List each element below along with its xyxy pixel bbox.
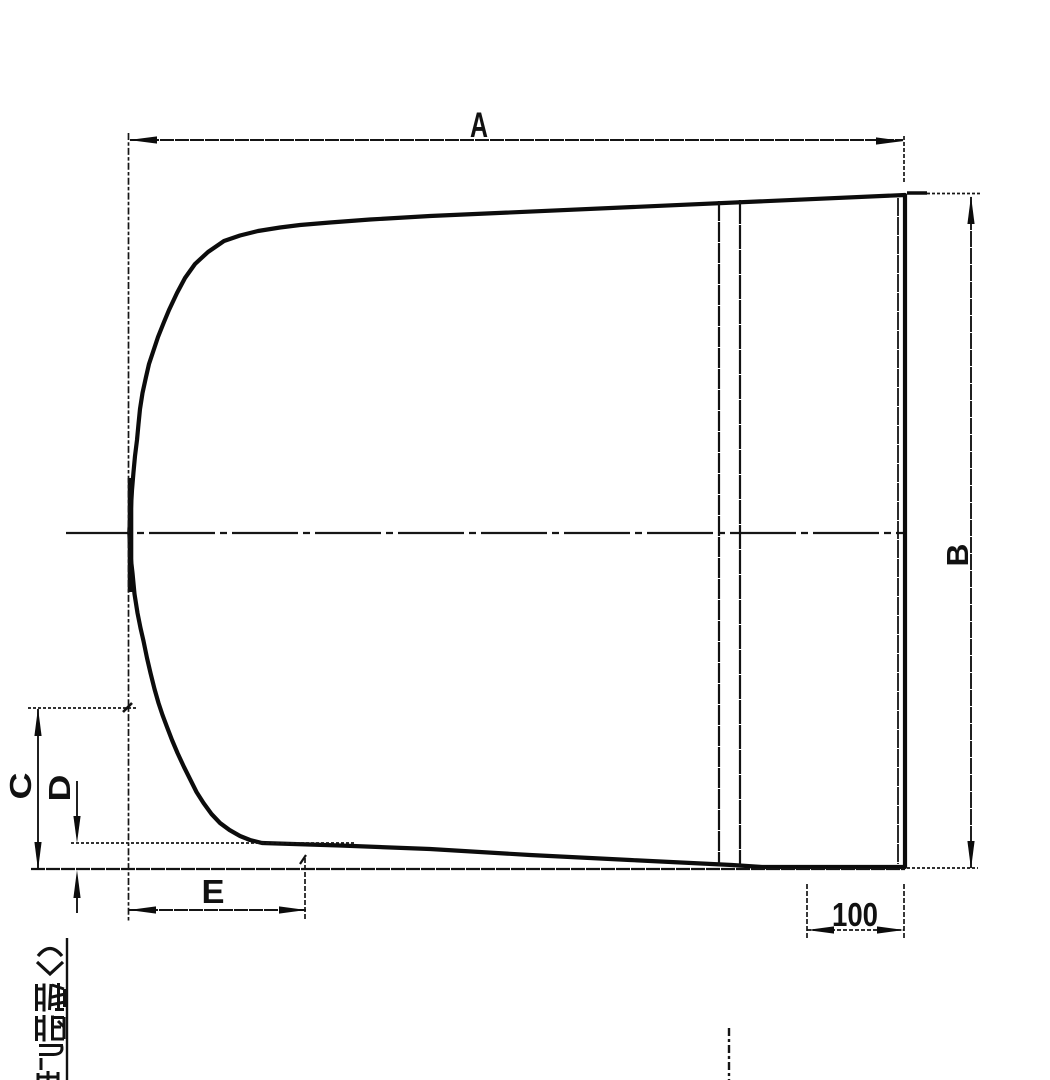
- svg-text:A: A: [470, 106, 488, 145]
- svg-text:B: B: [940, 544, 975, 567]
- svg-text:100: 100: [832, 896, 878, 933]
- svg-text:E: E: [202, 873, 225, 910]
- svg-text:D: D: [42, 775, 77, 802]
- svg-text:C: C: [3, 773, 38, 800]
